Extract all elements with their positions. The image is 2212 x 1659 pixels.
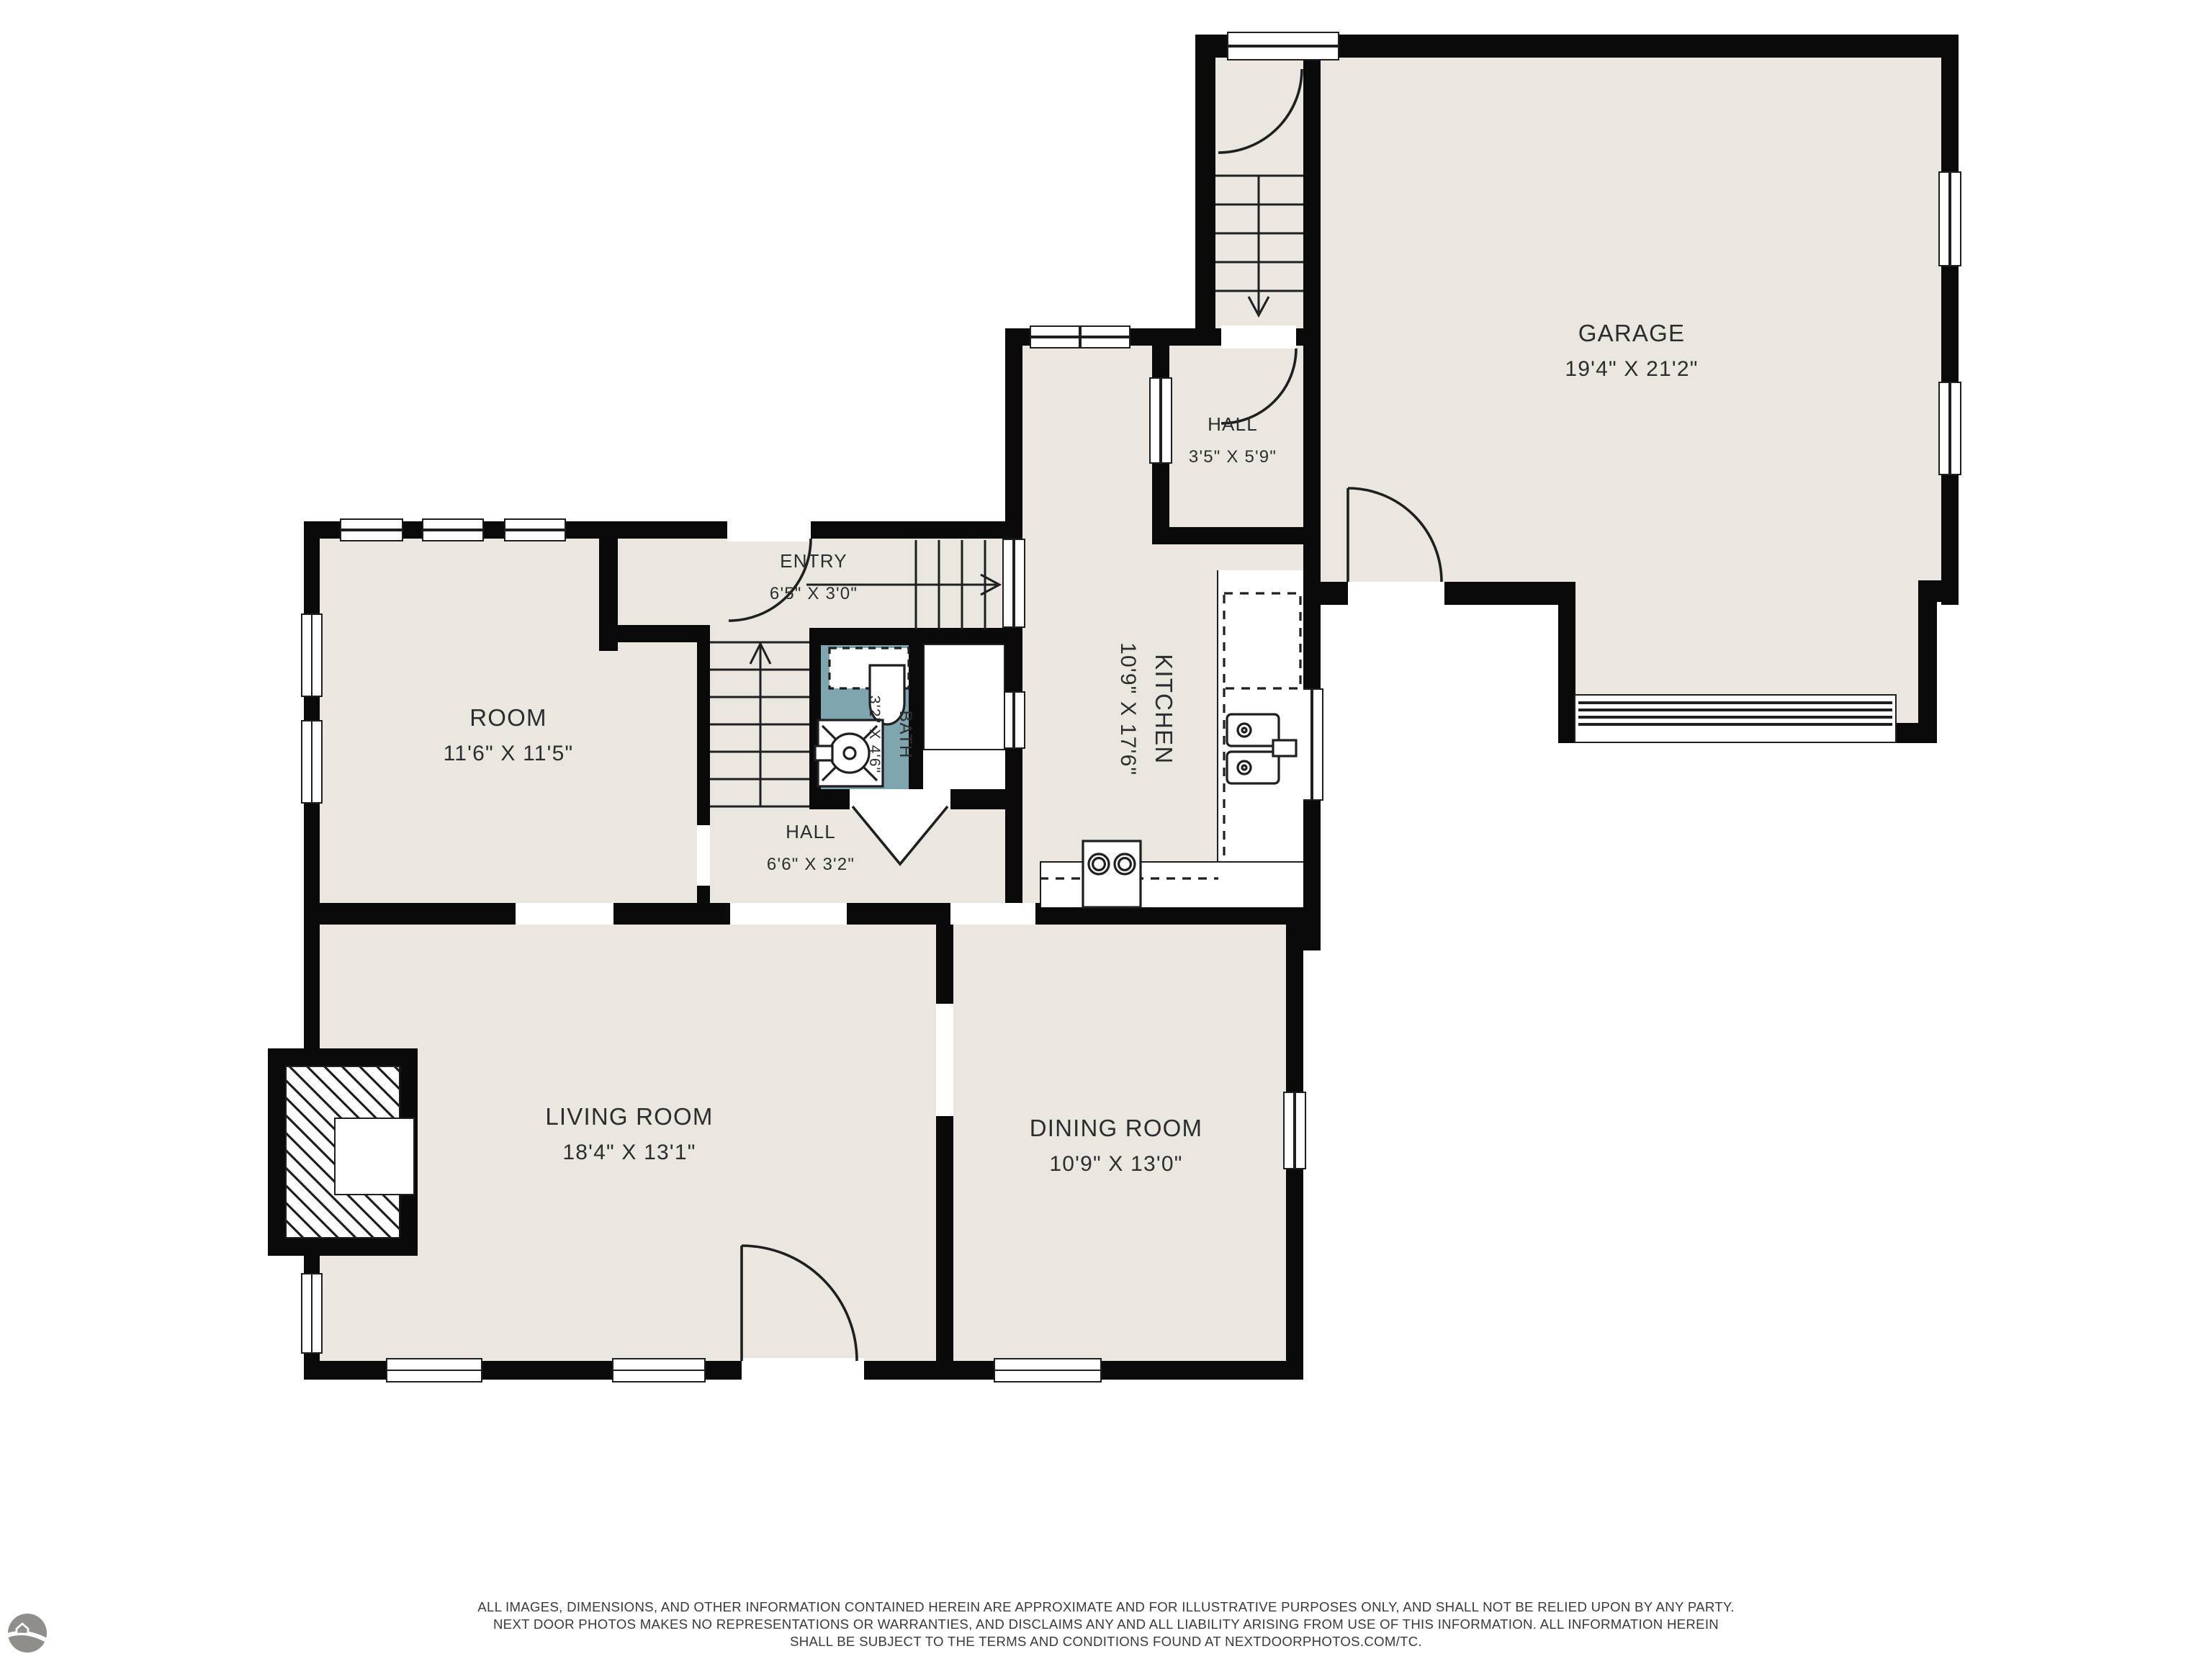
disclaimer: ALL IMAGES, DIMENSIONS, AND OTHER INFORM…	[0, 1599, 2212, 1650]
stove-icon	[1083, 841, 1141, 907]
room-dims: 11'6" X 11'5"	[444, 742, 574, 766]
bath-dims: 3'2" X 4'6"	[866, 696, 883, 774]
room-label-entry: ENTRY 6'5" X 3'0"	[713, 547, 914, 610]
hall-upper-name: HALL	[1161, 410, 1305, 439]
garage-name: GARAGE	[1459, 317, 1804, 353]
room-label-kitchen: KITCHEN 10'9" X 17'6"	[1110, 623, 1180, 796]
door-arc-garage-side	[1348, 488, 1442, 582]
garage-dims: 19'4" X 21'2"	[1565, 357, 1698, 382]
floor-plan: GARAGE 19'4" X 21'2" HALL 3'5" X 5'9" KI…	[0, 0, 2212, 1659]
disclaimer-line-2: NEXT DOOR PHOTOS MAKES NO REPRESENTATION…	[0, 1616, 2212, 1633]
door-arc-garage-entry	[1218, 69, 1302, 153]
hall-upper-dims: 3'5" X 5'9"	[1189, 446, 1277, 466]
staircase-garage-down	[1215, 176, 1303, 315]
room-label-garage: GARAGE 19'4" X 21'2"	[1459, 317, 1804, 387]
room-label-room: ROOM 11'6" X 11'5"	[393, 701, 624, 772]
staircase-main-up	[710, 642, 809, 806]
room-label-living: LIVING ROOM 18'4" X 13'1"	[485, 1100, 773, 1171]
dining-name: DINING ROOM	[972, 1112, 1260, 1148]
hall-lower-name: HALL	[710, 818, 912, 846]
room-label-dining: DINING ROOM 10'9" X 13'0"	[972, 1112, 1260, 1182]
next-door-photos-logo-icon	[7, 1613, 48, 1653]
kitchen-sink-icon	[1227, 714, 1296, 783]
room-label-hall-upper: HALL 3'5" X 5'9"	[1161, 410, 1305, 473]
disclaimer-line-3: SHALL BE SUBJECT TO THE TERMS AND CONDIT…	[0, 1633, 2212, 1650]
room-name: ROOM	[393, 701, 624, 737]
door-arc-living	[742, 1246, 857, 1361]
living-name: LIVING ROOM	[485, 1100, 773, 1136]
kitchen-name: KITCHEN	[1144, 623, 1180, 796]
living-dims: 18'4" X 13'1"	[562, 1141, 696, 1165]
disclaimer-line-1: ALL IMAGES, DIMENSIONS, AND OTHER INFORM…	[0, 1599, 2212, 1616]
dining-dims: 10'9" X 13'0"	[1049, 1152, 1182, 1177]
entry-name: ENTRY	[713, 547, 914, 575]
entry-dims: 6'5" X 3'0"	[770, 583, 858, 603]
room-label-bath: BATH 3'2" X 4'6"	[858, 655, 919, 814]
room-label-hall-lower: HALL 6'6" X 3'2"	[710, 818, 912, 881]
hall-lower-dims: 6'6" X 3'2"	[767, 853, 855, 873]
kitchen-dims: 10'9" X 17'6"	[1115, 642, 1140, 775]
bath-name: BATH	[893, 655, 919, 814]
